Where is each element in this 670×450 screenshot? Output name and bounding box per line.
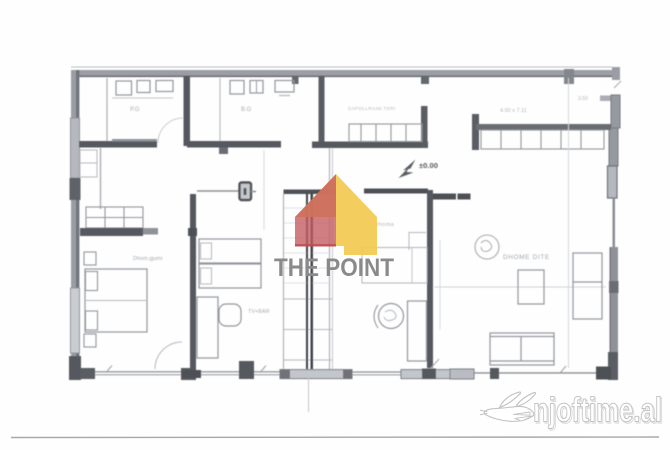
svg-text:Dhom.gjumi: Dhom.gjumi (133, 256, 162, 262)
svg-text:P.G: P.G (130, 107, 140, 113)
svg-text:4.50 x 7.11: 4.50 x 7.11 (500, 108, 527, 114)
svg-text:Dhoma: Dhoma (374, 222, 395, 228)
svg-text:ZAPOLLRIUM.TERI: ZAPOLLRIUM.TERI (348, 106, 395, 112)
svg-text:3.50: 3.50 (578, 96, 588, 102)
svg-text:THE POINT: THE POINT (274, 254, 394, 282)
svg-text:±0.00: ±0.00 (419, 161, 438, 170)
svg-text:TV+BAR: TV+BAR (248, 309, 270, 315)
svg-text:B.G: B.G (241, 107, 252, 113)
svg-text:njoftime.al: njoftime.al (533, 392, 662, 430)
svg-text:DHOME DITE: DHOME DITE (503, 254, 550, 261)
